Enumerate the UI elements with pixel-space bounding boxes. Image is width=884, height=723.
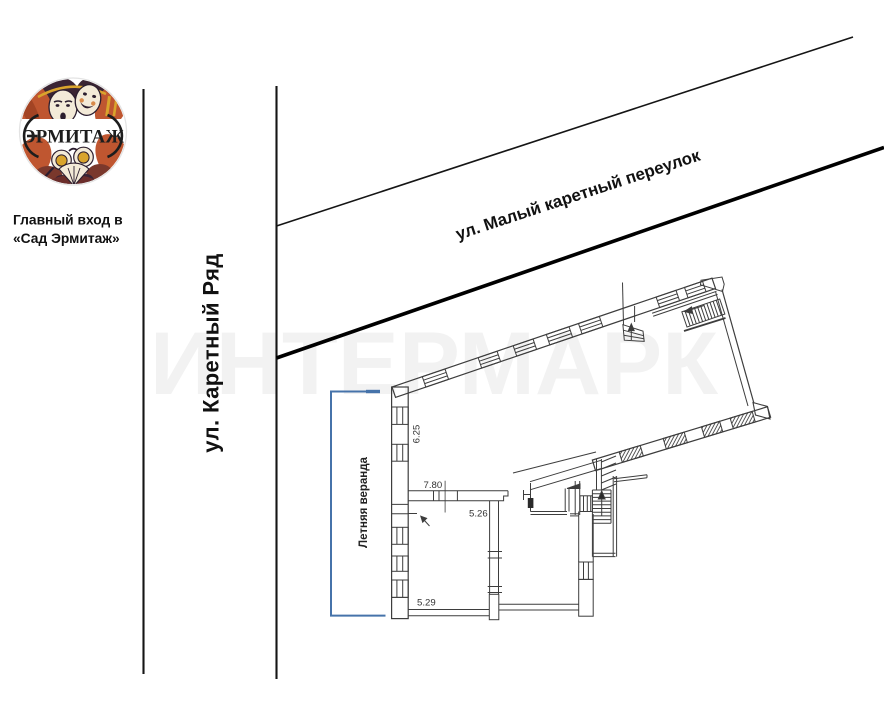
svg-text:7.80: 7.80	[424, 480, 443, 491]
svg-text:5.26: 5.26	[469, 509, 488, 520]
svg-text:5.29: 5.29	[417, 598, 436, 609]
svg-text:Главный вход в: Главный вход в	[13, 213, 123, 228]
svg-text:«Сад Эрмитаж»: «Сад Эрмитаж»	[13, 231, 120, 246]
svg-text:ЭРМИТАЖ: ЭРМИТАЖ	[23, 127, 125, 148]
svg-text:ул. Каретный Ряд: ул. Каретный Ряд	[199, 253, 224, 453]
svg-text:6.25: 6.25	[412, 425, 423, 444]
svg-text:Летняя веранда: Летняя веранда	[358, 456, 370, 547]
svg-text:ул. Малый каретный переулок: ул. Малый каретный переулок	[453, 146, 703, 244]
